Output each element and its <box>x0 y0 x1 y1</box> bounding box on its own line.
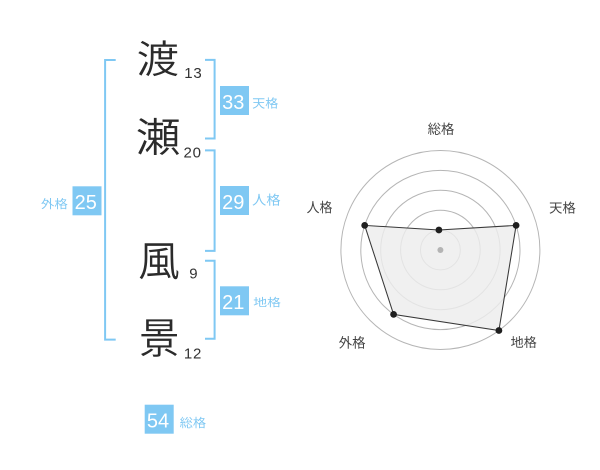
svg-text:54: 54 <box>147 411 169 433</box>
svg-text:20: 20 <box>184 145 202 162</box>
svg-text:9: 9 <box>189 265 197 282</box>
svg-text:25: 25 <box>75 192 97 214</box>
svg-text:21: 21 <box>222 292 244 314</box>
svg-text:12: 12 <box>184 345 202 362</box>
svg-text:29: 29 <box>222 192 244 214</box>
svg-text:33: 33 <box>222 92 244 114</box>
svg-text:13: 13 <box>184 65 202 82</box>
